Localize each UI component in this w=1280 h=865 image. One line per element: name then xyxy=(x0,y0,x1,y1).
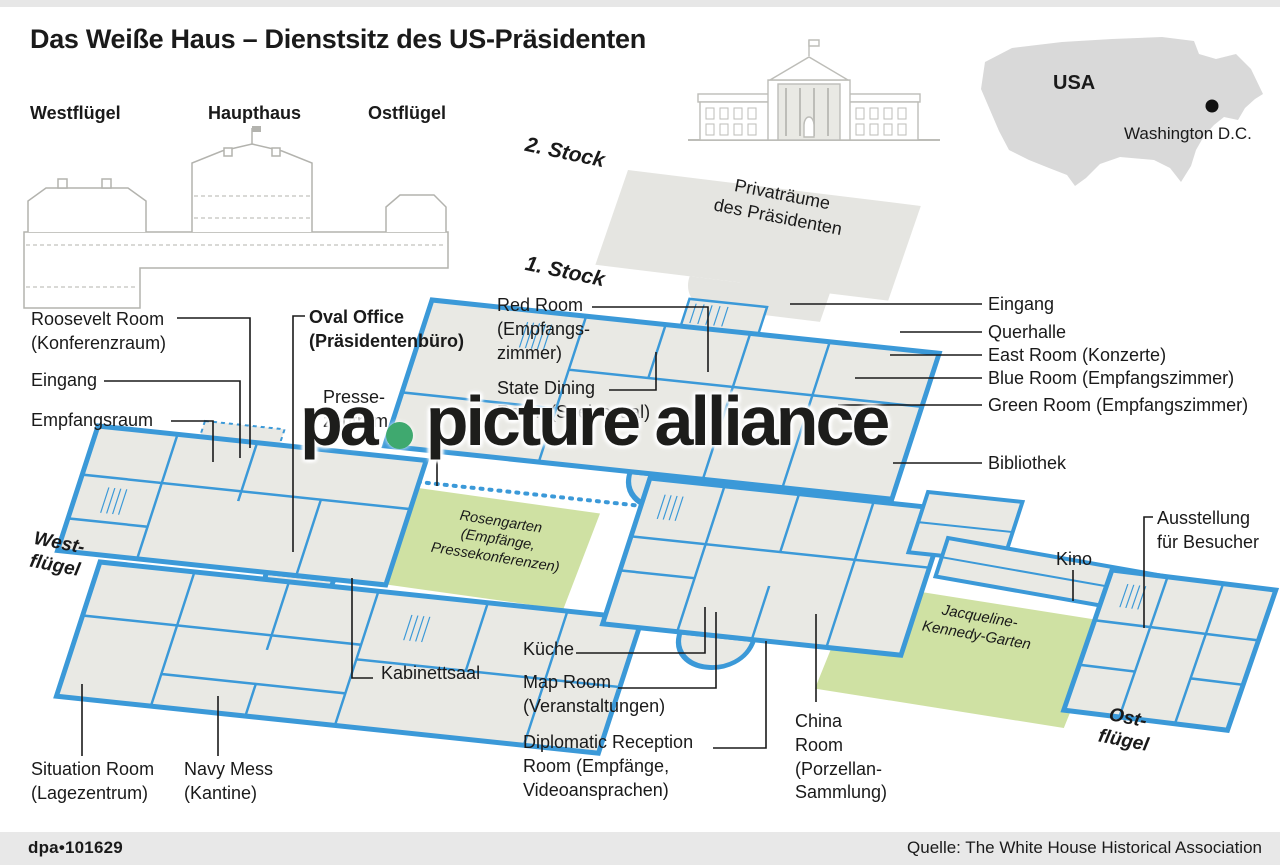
label-diplomatic: Diplomatic Reception Room (Empfänge, Vid… xyxy=(523,731,693,802)
footer-bar: dpa•101629 Quelle: The White House Histo… xyxy=(0,832,1280,865)
elevation-drawing xyxy=(24,126,448,308)
watermark-picture-alliance: picture alliance xyxy=(426,386,888,456)
label-west-fluegel: West- flügel xyxy=(27,528,86,583)
label-eingang-ost: Eingang xyxy=(988,293,1054,317)
watermark-pa: pa xyxy=(300,386,376,456)
dpa-id: dpa•101629 xyxy=(28,838,123,858)
infographic-canvas: Das Weiße Haus – Dienstsitz des US-Präsi… xyxy=(0,0,1280,865)
label-querhalle: Querhalle xyxy=(988,321,1066,345)
label-situation-room: Situation Room (Lagezentrum) xyxy=(31,758,154,806)
ground-floor-plan xyxy=(592,478,948,687)
label-kino: Kino xyxy=(1056,548,1092,572)
label-east-room: East Room (Konzerte) xyxy=(988,344,1166,368)
washington-dc-dot xyxy=(1206,100,1219,113)
label-china-room: China Room (Porzellan- Sammlung) xyxy=(795,710,887,805)
label-map-room: Map Room (Veranstaltungen) xyxy=(523,671,665,719)
label-washington-dc: Washington D.C. xyxy=(1124,124,1252,144)
usa-map xyxy=(981,37,1263,186)
label-blue-room: Blue Room (Empfangszimmer) xyxy=(988,367,1234,391)
label-green-room: Green Room (Empfangszimmer) xyxy=(988,394,1248,418)
label-bibliothek: Bibliothek xyxy=(988,452,1066,476)
watermark-green-dot xyxy=(386,422,413,449)
watermark: pa picture alliance xyxy=(300,386,887,456)
label-empfangsraum: Empfangsraum xyxy=(31,409,153,433)
label-eingang-west: Eingang xyxy=(31,369,97,393)
label-usa: USA xyxy=(1053,72,1095,95)
label-red-room: Red Room (Empfangs- zimmer) xyxy=(497,294,590,365)
label-oval-office: Oval Office (Präsidentenbüro) xyxy=(309,306,464,354)
label-kueche: Küche xyxy=(523,638,574,662)
label-roosevelt-room: Roosevelt Room (Konferenzraum) xyxy=(31,308,166,356)
label-ost-fluegel: Ost- flügel xyxy=(1096,703,1154,757)
white-house-illustration xyxy=(688,40,940,140)
label-kabinettsaal: Kabinettsaal xyxy=(381,662,480,686)
source-credit: Quelle: The White House Historical Assoc… xyxy=(907,838,1262,858)
label-ausstellung: Ausstellung für Besucher xyxy=(1157,507,1259,555)
label-navy-mess: Navy Mess (Kantine) xyxy=(184,758,273,806)
